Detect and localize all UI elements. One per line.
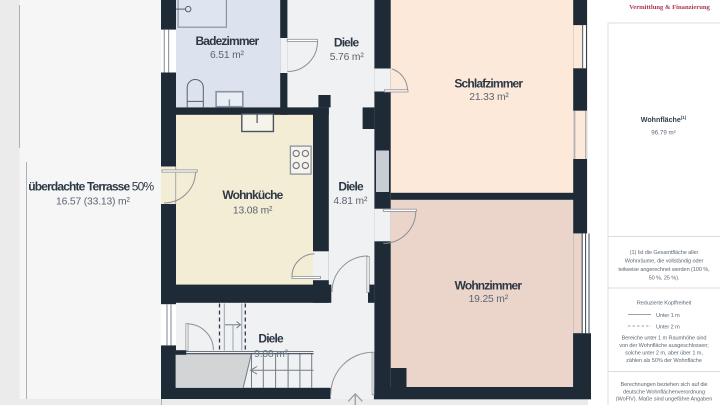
svg-text:Wohnzimmer: Wohnzimmer (455, 278, 523, 292)
svg-text:21.33 m²: 21.33 m² (469, 92, 509, 103)
svg-text:50 %, 25 %).: 50 %, 25 %). (649, 276, 680, 282)
svg-text:deutsche Wohnflächenverordnung: deutsche Wohnflächenverordnung (623, 389, 705, 395)
svg-text:überdachte Terrasse 50%: überdachte Terrasse 50% (28, 180, 154, 194)
svg-text:Wohnfläche(1): Wohnfläche(1) (641, 115, 687, 124)
svg-text:19.25 m²: 19.25 m² (469, 294, 509, 305)
svg-text:(WoFlV). Maße sind ungefähre A: (WoFlV). Maße sind ungefähre Angaben (616, 397, 712, 403)
svg-text:Schlafzimmer: Schlafzimmer (454, 77, 523, 91)
svg-text:Vermittlung & Finanzierung: Vermittlung & Finanzierung (629, 4, 710, 11)
svg-text:Unter 2 m: Unter 2 m (656, 325, 680, 331)
svg-text:(1) Ist die Gesamtfläche aller: (1) Ist die Gesamtfläche aller (630, 250, 699, 256)
svg-text:solche unter 2 m, aber über 1: solche unter 2 m, aber über 1 m, (625, 351, 703, 357)
svg-text:4.81 m²: 4.81 m² (333, 196, 368, 207)
svg-text:9.08 m²: 9.08 m² (254, 349, 289, 360)
svg-text:5.76 m²: 5.76 m² (330, 52, 365, 63)
svg-text:zählen als 50% der Wohnfläche: zählen als 50% der Wohnfläche (626, 358, 702, 364)
svg-text:Reduzierte Kopffreiheit: Reduzierte Kopffreiheit (637, 300, 692, 306)
svg-text:16.57 (33.13) m²: 16.57 (33.13) m² (56, 197, 130, 208)
svg-text:teilweise angerechnet werden (: teilweise angerechnet werden (100 %, (618, 267, 710, 273)
svg-text:Wohnräume, die vollständig ode: Wohnräume, die vollständig oder (625, 259, 704, 265)
svg-text:6.51 m²: 6.51 m² (210, 50, 245, 61)
svg-text:13.08 m²: 13.08 m² (233, 205, 273, 216)
svg-text:Wohnküche: Wohnküche (222, 188, 283, 202)
svg-text:96.79 m²: 96.79 m² (651, 129, 675, 136)
svg-text:von der Wohnfläche ausgeschlos: von der Wohnfläche ausgeschlossen; (619, 343, 709, 349)
svg-text:Berechnungen beziehen sich auf: Berechnungen beziehen sich auf die (620, 382, 707, 388)
svg-text:Diele: Diele (334, 36, 360, 50)
svg-text:Unter 1 m: Unter 1 m (656, 313, 680, 319)
svg-text:Bereiche unter 1 m Raumhöhe si: Bereiche unter 1 m Raumhöhe sind (622, 336, 707, 342)
svg-text:Diele: Diele (258, 331, 284, 345)
svg-text:Badezimmer: Badezimmer (195, 34, 259, 48)
svg-text:Diele: Diele (338, 179, 364, 193)
